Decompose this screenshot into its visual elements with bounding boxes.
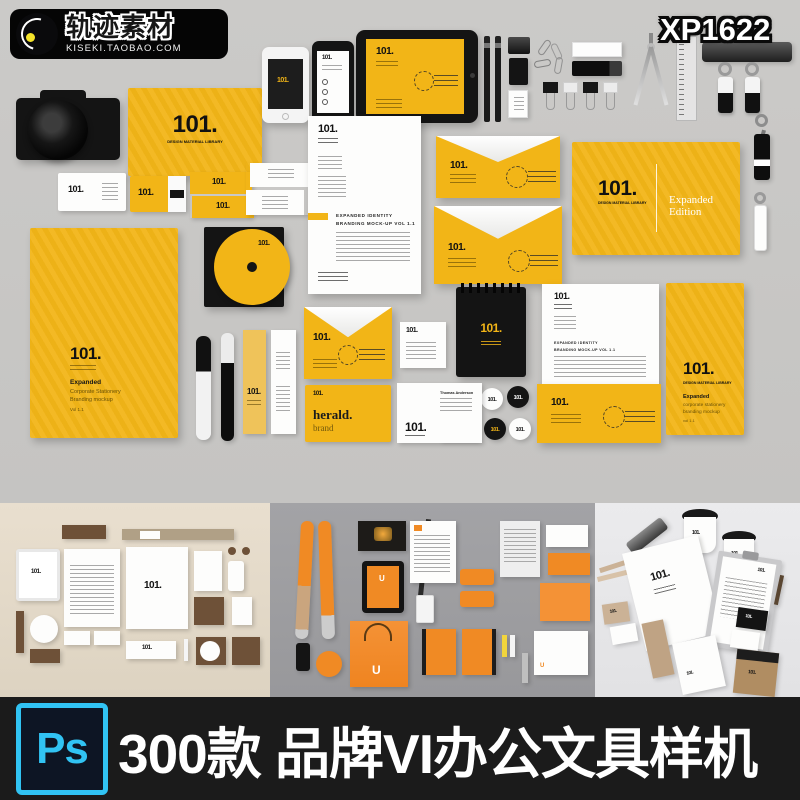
preview-orange-scene: U U	[270, 503, 595, 697]
badge-logo: 101.	[488, 397, 497, 403]
spiral-binding	[461, 283, 521, 293]
dark-card	[358, 521, 406, 551]
kraft-logo: 101.	[610, 609, 617, 614]
white-cards-stack-2	[246, 163, 308, 215]
letterhead: 101. EXPANDED IDENTITY BRANDING MOCK-UP …	[308, 116, 421, 294]
binder-clip-wire	[586, 93, 595, 110]
gray-paper-lines	[504, 529, 536, 565]
tablet-stamp-waves	[434, 75, 458, 88]
herald-sub: brand	[313, 423, 334, 433]
box-logo: 101.	[128, 114, 262, 136]
white-env-mini	[546, 525, 588, 547]
folder-line1: Corporate Stationery	[70, 388, 121, 396]
phone-icon-2	[322, 89, 328, 95]
orange-card	[460, 591, 494, 607]
badge-black-2: 101.	[484, 418, 506, 440]
ruler	[676, 36, 697, 121]
photoshop-icon: Ps	[16, 703, 108, 795]
tablet-screen: 101.	[366, 39, 464, 114]
spiral-notebook: 101.	[456, 287, 526, 377]
envelope3-waves	[359, 349, 385, 362]
box-logo-sub: DESIGN MATERIAL LIBRARY	[128, 139, 262, 144]
wood-square	[194, 597, 224, 625]
envelope-2: 101.	[434, 206, 562, 284]
black-card-logo: 101.	[745, 614, 752, 619]
notepad-mini	[232, 597, 252, 625]
iphone-white: 101.	[262, 47, 309, 123]
envelope2-postmark	[508, 250, 530, 272]
bizcard-logo: 101.	[405, 422, 426, 433]
business-card: Thomas Anderson 101.	[397, 383, 482, 443]
orange-tube	[295, 521, 314, 640]
binder-clip-white	[603, 82, 618, 93]
yellow-box: 101. DESIGN MATERIAL LIBRARY	[128, 88, 262, 176]
keychain-body	[754, 205, 767, 251]
envelope4-waves	[625, 411, 655, 425]
envelope-4: 101.	[537, 384, 661, 443]
tablet-home-button	[470, 73, 475, 78]
card-mini	[94, 631, 120, 645]
product-listing-image: 101. DESIGN MATERIAL LIBRARY 101. 101. 1…	[0, 0, 800, 800]
square-card-lines	[406, 342, 436, 360]
big-paper-sub	[654, 584, 677, 595]
poster-mini: 101.	[126, 547, 188, 629]
card-box-cards	[170, 190, 184, 198]
booklet-divider	[656, 164, 657, 232]
ruler-mini	[522, 653, 528, 683]
badge-white-1: 101.	[481, 388, 503, 410]
comet-logo-icon	[16, 13, 58, 55]
card-lines	[268, 169, 294, 181]
compass-leg	[634, 46, 653, 105]
bag-logo: U	[372, 663, 381, 677]
binder-clip-wire	[566, 93, 575, 110]
envelope4-lines	[551, 414, 581, 426]
cd-disc-mini	[200, 641, 220, 661]
letterhead-mini	[410, 521, 456, 583]
envelope2-lines	[448, 258, 476, 268]
yellow-bookmark: 101.	[243, 330, 266, 434]
wood-card	[30, 649, 60, 663]
cd-disc: 101.	[214, 229, 290, 305]
card-mini	[64, 631, 90, 645]
binder-clip-black	[583, 82, 598, 93]
tablet-stamp-circle	[414, 71, 434, 91]
marker-yellow	[502, 635, 507, 657]
loupe-glass	[755, 114, 768, 127]
home-button	[282, 113, 289, 120]
bizcard-name: Thomas Anderson	[440, 391, 474, 395]
letterhead-mark	[414, 525, 422, 531]
card-text-lines	[102, 183, 118, 201]
folder-title: Expanded	[70, 378, 121, 388]
cd-logo: 101.	[258, 241, 270, 247]
tube	[122, 529, 234, 540]
wood-box-2	[232, 637, 260, 665]
badge-white-2: 101.	[509, 418, 531, 440]
wood-strip	[16, 611, 24, 653]
envelope4-postmark	[603, 406, 625, 428]
ruler-ticks	[679, 39, 684, 118]
bookmark-lines	[276, 352, 290, 372]
tablet-footer-lines	[376, 99, 402, 108]
white-card-b	[246, 190, 304, 215]
dot-brown	[228, 547, 236, 555]
folder-line3: Vol 1.1	[70, 407, 121, 414]
bookmark-sub	[247, 400, 261, 406]
env-mini-logo: 101.	[686, 670, 693, 675]
card-101-logo: 101.	[142, 646, 152, 651]
cd-orange	[316, 651, 342, 677]
binder-clip-white	[563, 82, 578, 93]
big-paper-logo: 101.	[650, 569, 671, 584]
dot-brown	[242, 547, 250, 555]
keychain-strap	[718, 77, 733, 113]
letterhead-heading-1: EXPANDED IDENTITY	[336, 212, 415, 220]
booklet: 101. DESIGN MATERIAL LIBRARY Expanded Ed…	[572, 142, 740, 255]
bizcard-lines	[440, 398, 472, 414]
phone-icon-3	[322, 99, 328, 105]
preview-coffee-scene: 101. 101. 101. 101.	[595, 503, 800, 697]
usb-drive-black	[509, 58, 528, 85]
book-line1: corporate stationery	[683, 402, 725, 409]
title-banner: Ps 300款 品牌VI办公文具样机	[0, 697, 800, 800]
banner-title: 300款 品牌VI办公文具样机	[118, 709, 757, 789]
envelope3-lines	[313, 359, 337, 369]
orange-card	[460, 569, 494, 585]
envelope-3: 101.	[304, 307, 392, 379]
white-env-big: U	[534, 631, 588, 675]
product-code: XP1622	[660, 12, 770, 48]
marker-white	[510, 635, 515, 657]
keychain-ring	[718, 62, 732, 76]
keychain-strap	[745, 77, 760, 113]
letterhead-body	[336, 232, 410, 262]
mini-logo: 101.	[31, 570, 41, 575]
herald-card: 101. herald. brand	[305, 385, 391, 442]
pencil-1	[484, 36, 490, 122]
booklet-logo: 101.	[598, 180, 647, 199]
card-logo: 101.	[68, 185, 84, 193]
card-101: 101.	[126, 641, 176, 659]
bookmark-lines2	[276, 386, 290, 412]
gray-paper	[500, 521, 540, 577]
phone-icon-1	[322, 79, 328, 85]
dark-card-art	[374, 527, 392, 541]
comet-dot	[26, 33, 35, 42]
pen	[221, 333, 234, 441]
phone-text-lines	[322, 65, 342, 73]
folded-heading2: BRANDING MOCK-UP VOL 1.1	[554, 347, 615, 354]
book-line2: branding mockup	[683, 409, 725, 416]
wood-box	[62, 525, 106, 539]
keychain-ring	[754, 192, 766, 204]
folder-line2: Branding mockup	[70, 396, 121, 404]
yellow-card-top: 101.	[190, 172, 252, 194]
bag-handle	[364, 623, 392, 641]
phone2-screen-logo: 101.	[322, 56, 332, 61]
preview-row: 101. 101. 101.	[0, 503, 800, 697]
shop-logo-badge: 轨迹素材 KISEKI.TAOBAO.COM	[10, 9, 228, 59]
usb-drive-right	[754, 134, 770, 180]
stick-lines	[514, 97, 524, 111]
cd-sleeve	[196, 637, 226, 665]
letterhead-heading-2: BRANDING MOCK-UP VOL 1.1	[336, 220, 415, 228]
folded-heading1: EXPANDED IDENTITY	[554, 340, 615, 347]
letterhead-address2	[318, 176, 346, 198]
book-logo-sub: DESIGN MATERIAL LIBRARY	[683, 381, 732, 385]
book-line3: vol 1.1	[683, 418, 725, 424]
notebook-logo: 101.	[456, 323, 526, 334]
tube-label	[140, 531, 160, 539]
white-bookmark	[271, 330, 296, 434]
orange-env-mini	[548, 553, 590, 575]
camera-lens	[28, 100, 88, 160]
u-logo: U	[379, 574, 385, 583]
badge-black-1: 101.	[507, 386, 529, 408]
envelope3-logo: 101.	[313, 333, 330, 342]
paper-clip	[534, 59, 552, 69]
shop-url: KISEKI.TAOBAO.COM	[66, 44, 182, 54]
herald-title: herald.	[313, 407, 352, 423]
tablet: 101.	[356, 30, 478, 123]
kraft-card: 101.	[602, 601, 631, 624]
compass-leg	[649, 46, 668, 105]
badge-logo: 101.	[491, 427, 500, 433]
orange-bag: U	[350, 621, 408, 687]
folded-logo-sub	[554, 304, 572, 309]
yellow-card-logo2: 101.	[216, 202, 230, 209]
square-card-logo: 101.	[406, 328, 418, 334]
keychain-ring	[745, 62, 759, 76]
paper-clips	[537, 37, 573, 79]
black-card: 101.	[736, 607, 768, 631]
card-box-logo: 101.	[138, 188, 154, 196]
marker-pen	[196, 336, 211, 440]
binder-clips	[543, 82, 623, 114]
clipboard-logo: 101.	[757, 568, 765, 574]
booklet-edition: Expanded Edition	[669, 194, 740, 218]
square-card: 101.	[400, 322, 446, 368]
letter-mini	[64, 549, 120, 627]
cd-mini	[30, 615, 58, 643]
orange-tube-2	[318, 521, 335, 639]
notebook-logo-sub	[481, 341, 501, 347]
preview-beige-scene: 101. 101. 101.	[0, 503, 270, 697]
keychain-right	[751, 192, 771, 254]
white-card-mini	[610, 623, 639, 645]
binder-clip-black	[543, 82, 558, 93]
phone-mini	[228, 561, 244, 591]
booklet-logo-sub: DESIGN MATERIAL LIBRARY	[598, 201, 647, 205]
book-title: Expanded	[683, 393, 725, 402]
folded-body	[554, 356, 646, 380]
bookmark-logo: 101.	[247, 388, 261, 395]
pencil-2	[495, 36, 501, 122]
letter-lines	[70, 565, 114, 617]
iphone-black: 101.	[312, 41, 354, 127]
folder-logo: 101.	[70, 346, 101, 361]
envelope1-logo: 101.	[450, 161, 467, 170]
folded-logo: 101.	[554, 292, 570, 300]
white-box	[572, 42, 622, 57]
poster-logo: 101.	[144, 581, 161, 590]
white-stick	[508, 90, 528, 118]
orange-notebook	[422, 629, 456, 675]
orange-notebook-2	[462, 629, 496, 675]
white-card-mini-2	[730, 629, 760, 651]
envelope1-waves	[528, 171, 556, 185]
badge-logo: 101.	[514, 395, 523, 401]
kraft-notebook-logo: 101.	[748, 670, 756, 675]
phone-mini-dark	[296, 643, 310, 671]
letterhead-accent-bar	[308, 213, 328, 220]
hero-mockup-scene: 101. DESIGN MATERIAL LIBRARY 101. 101. 1…	[0, 0, 800, 503]
tablet-orange: U	[362, 561, 404, 613]
yellow-card-bottom: 101.	[192, 196, 254, 218]
keychain-2	[739, 62, 767, 116]
env-logo: U	[540, 663, 544, 669]
white-card-a	[250, 163, 308, 187]
letterhead-logo: 101.	[318, 125, 337, 135]
shop-name: 轨迹素材	[66, 14, 182, 40]
yellow-folder: 101. Expanded Corporate Stationery Brand…	[30, 228, 178, 438]
bizcard-logo-sub	[405, 435, 425, 439]
envelope-1: 101.	[436, 136, 560, 198]
photoshop-icon-label: Ps	[36, 724, 88, 774]
eraser	[508, 37, 530, 54]
letterhead-address	[318, 156, 342, 170]
tablet-logo: 101.	[376, 47, 393, 56]
pen-mini	[184, 639, 188, 661]
envelope1-postmark	[506, 166, 528, 188]
folded-letterhead: 101. EXPANDED IDENTITY BRANDING MOCK-UP …	[542, 284, 659, 386]
letterhead-signature	[318, 272, 348, 284]
orange-env-big	[540, 583, 590, 621]
badge-logo: 101.	[516, 427, 525, 433]
envelope1-lines	[450, 174, 476, 184]
letterhead-lines	[414, 535, 450, 575]
card-lines	[262, 196, 288, 209]
book-logo: 101.	[683, 361, 714, 376]
binder-clip-wire	[606, 93, 615, 110]
folded-address	[554, 316, 576, 332]
binder-clip-wire	[546, 93, 555, 110]
tablet-logo-sub	[376, 61, 398, 67]
envelope4-logo: 101.	[551, 398, 568, 407]
envelope2-waves	[530, 255, 558, 269]
yellow-cards-stack: 101. 101.	[190, 172, 252, 218]
envelope2-logo: 101.	[448, 243, 465, 252]
letterhead-logo-sub	[318, 138, 338, 145]
tablet-orange-screen: U	[367, 566, 399, 608]
iphone-black-screen: 101.	[317, 51, 349, 113]
kraft-notebook: 101.	[733, 649, 779, 697]
lanyard-badge	[416, 595, 434, 623]
keychain-1	[712, 62, 740, 116]
yellow-card-logo: 101.	[212, 178, 226, 185]
cd-hole	[247, 262, 257, 272]
herald-logo: 101.	[313, 392, 323, 397]
white-card-stack: 101.	[58, 173, 126, 211]
iphone-white-screen: 101.	[268, 59, 303, 109]
yellow-card-box: 101.	[130, 176, 186, 212]
tablet-mini: 101.	[16, 549, 60, 601]
envelope3-postmark	[338, 345, 358, 365]
paper-mini	[194, 551, 222, 591]
yellow-book: 101. DESIGN MATERIAL LIBRARY Expanded co…	[666, 283, 744, 435]
paper-clip	[554, 57, 564, 75]
phone-screen-logo: 101.	[277, 78, 289, 84]
usb-drive-long	[572, 61, 622, 76]
folder-logo-sub	[70, 365, 96, 372]
